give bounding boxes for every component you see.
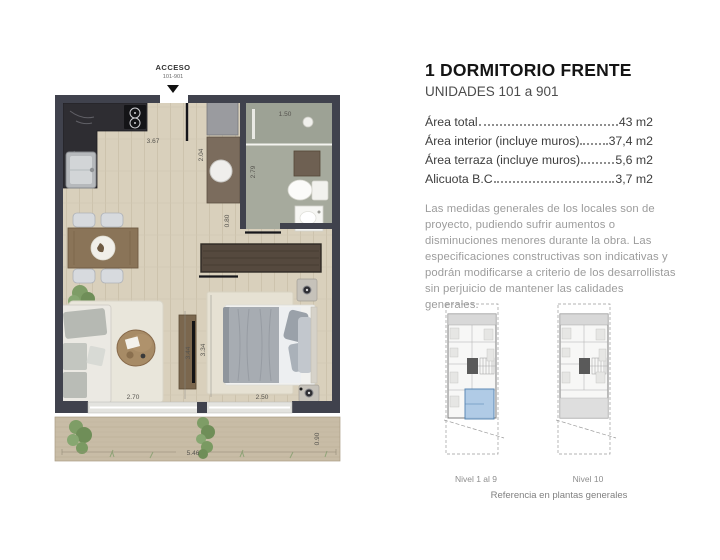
sofa	[59, 305, 111, 403]
tv	[192, 321, 195, 383]
kitchen-sink	[66, 152, 96, 188]
dim-terrace-depth: 0.90	[314, 432, 321, 445]
dim-bath-depth: 2.79	[250, 165, 257, 178]
ref-plan-drawing-2	[556, 302, 620, 464]
dim-bedroom-depth: 3.34	[200, 343, 207, 356]
brochure-page: { "header": { "title": "1 DORMITORIO FRE…	[0, 0, 720, 560]
dim-living-width: 2.70	[127, 394, 140, 401]
toilet	[288, 180, 328, 200]
terrace: 5.46 0.90	[55, 417, 340, 461]
ref-label-levels-1-9: Nivel 1 al 9	[416, 474, 536, 484]
area-table: Área total 43 m2 Área interior (incluye …	[425, 115, 653, 186]
ref-label-level-10: Nivel 10	[528, 474, 648, 484]
shower-head	[303, 117, 313, 127]
desk-chair	[210, 160, 232, 182]
page-title: 1 DORMITORIO FRENTE	[425, 60, 679, 81]
dotted-leader	[581, 162, 614, 164]
dim-shower-width: 1.50	[279, 111, 292, 118]
nightstand-top	[297, 279, 317, 301]
info-panel: 1 DORMITORIO FRENTE UNIDADES 101 a 901 Á…	[425, 60, 679, 313]
area-value: 43 m2	[619, 115, 653, 129]
area-row-terraza: Área terraza (incluye muros) 5,6 m2	[425, 153, 653, 167]
legal-disclaimer: Las medidas generales de los locales son…	[425, 201, 677, 313]
wardrobe	[201, 244, 321, 272]
dining-chair	[101, 269, 123, 283]
nightstand-bottom	[299, 385, 319, 402]
ref-setback-terrace	[560, 398, 608, 418]
window-mullion	[197, 402, 207, 413]
headboard	[311, 307, 317, 383]
windows	[88, 402, 292, 413]
access-label: ACCESO 101-901	[156, 63, 191, 93]
shower-column	[252, 109, 255, 139]
coffee-table	[117, 330, 155, 366]
dim-bedroom-width: 2.50	[256, 394, 269, 401]
dim-entry-depth: 2.04	[198, 148, 205, 161]
cabinet	[207, 101, 238, 135]
ref-plan-level-10: Nivel 10	[556, 302, 620, 484]
ref-core	[467, 358, 478, 374]
dim-hall-width: 0.80	[224, 214, 231, 227]
dining-chair	[101, 213, 123, 227]
area-value: 5,6 m2	[615, 153, 653, 167]
dining-chair	[73, 269, 95, 283]
floorplan-drawing: ACCESO 101-901 5.46 0.90	[40, 55, 350, 475]
shower	[246, 103, 332, 144]
ref-plan-levels-1-9: Nivel 1 al 9	[444, 302, 508, 484]
bed	[223, 305, 317, 385]
cooktop	[124, 105, 146, 129]
area-label: Área total	[425, 115, 478, 129]
access-units-text: 101-901	[163, 74, 184, 80]
reference-plans: Nivel 1 al 9 Nivel 10	[428, 302, 690, 514]
dim-living-depth: 3.44	[185, 346, 192, 359]
ref-caption: Referencia en plantas generales	[428, 490, 690, 501]
floorplan: ACCESO 101-901 5.46 0.90	[40, 55, 350, 475]
area-row-interior: Área interior (incluye muros) 37,4 m2	[425, 134, 653, 148]
dotted-leader	[479, 124, 618, 126]
dotted-leader	[580, 143, 607, 145]
area-row-total: Área total 43 m2	[425, 115, 653, 129]
area-value: 3,7 m2	[615, 172, 653, 186]
ref-dashed-line	[444, 420, 504, 438]
dim-terrace-width: 5.46	[187, 450, 200, 457]
area-label: Área terraza (incluye muros)	[425, 153, 580, 167]
dotted-leader	[494, 181, 615, 183]
bedroom: 3.34 2.50	[200, 279, 319, 402]
area-value: 37,4 m2	[609, 134, 653, 148]
access-text: ACCESO	[156, 63, 191, 72]
dining-chair	[73, 213, 95, 227]
ref-plan-drawing-1	[444, 302, 508, 464]
bathroom: 1.50 2.79	[246, 103, 332, 231]
entry-nook	[207, 101, 240, 203]
bath-vanity	[294, 151, 320, 176]
dim-kitchen-width: 3.67	[147, 138, 160, 145]
ref-core	[579, 358, 590, 374]
area-row-alicuota: Alicuota B.C 3,7 m2	[425, 172, 653, 186]
area-label: Alicuota B.C	[425, 172, 493, 186]
page-subtitle: UNIDADES 101 a 901	[425, 84, 679, 99]
pillow	[298, 317, 312, 373]
ref-dashed-line	[556, 420, 616, 438]
access-arrow-icon	[167, 85, 179, 93]
area-label: Área interior (incluye muros)	[425, 134, 579, 148]
